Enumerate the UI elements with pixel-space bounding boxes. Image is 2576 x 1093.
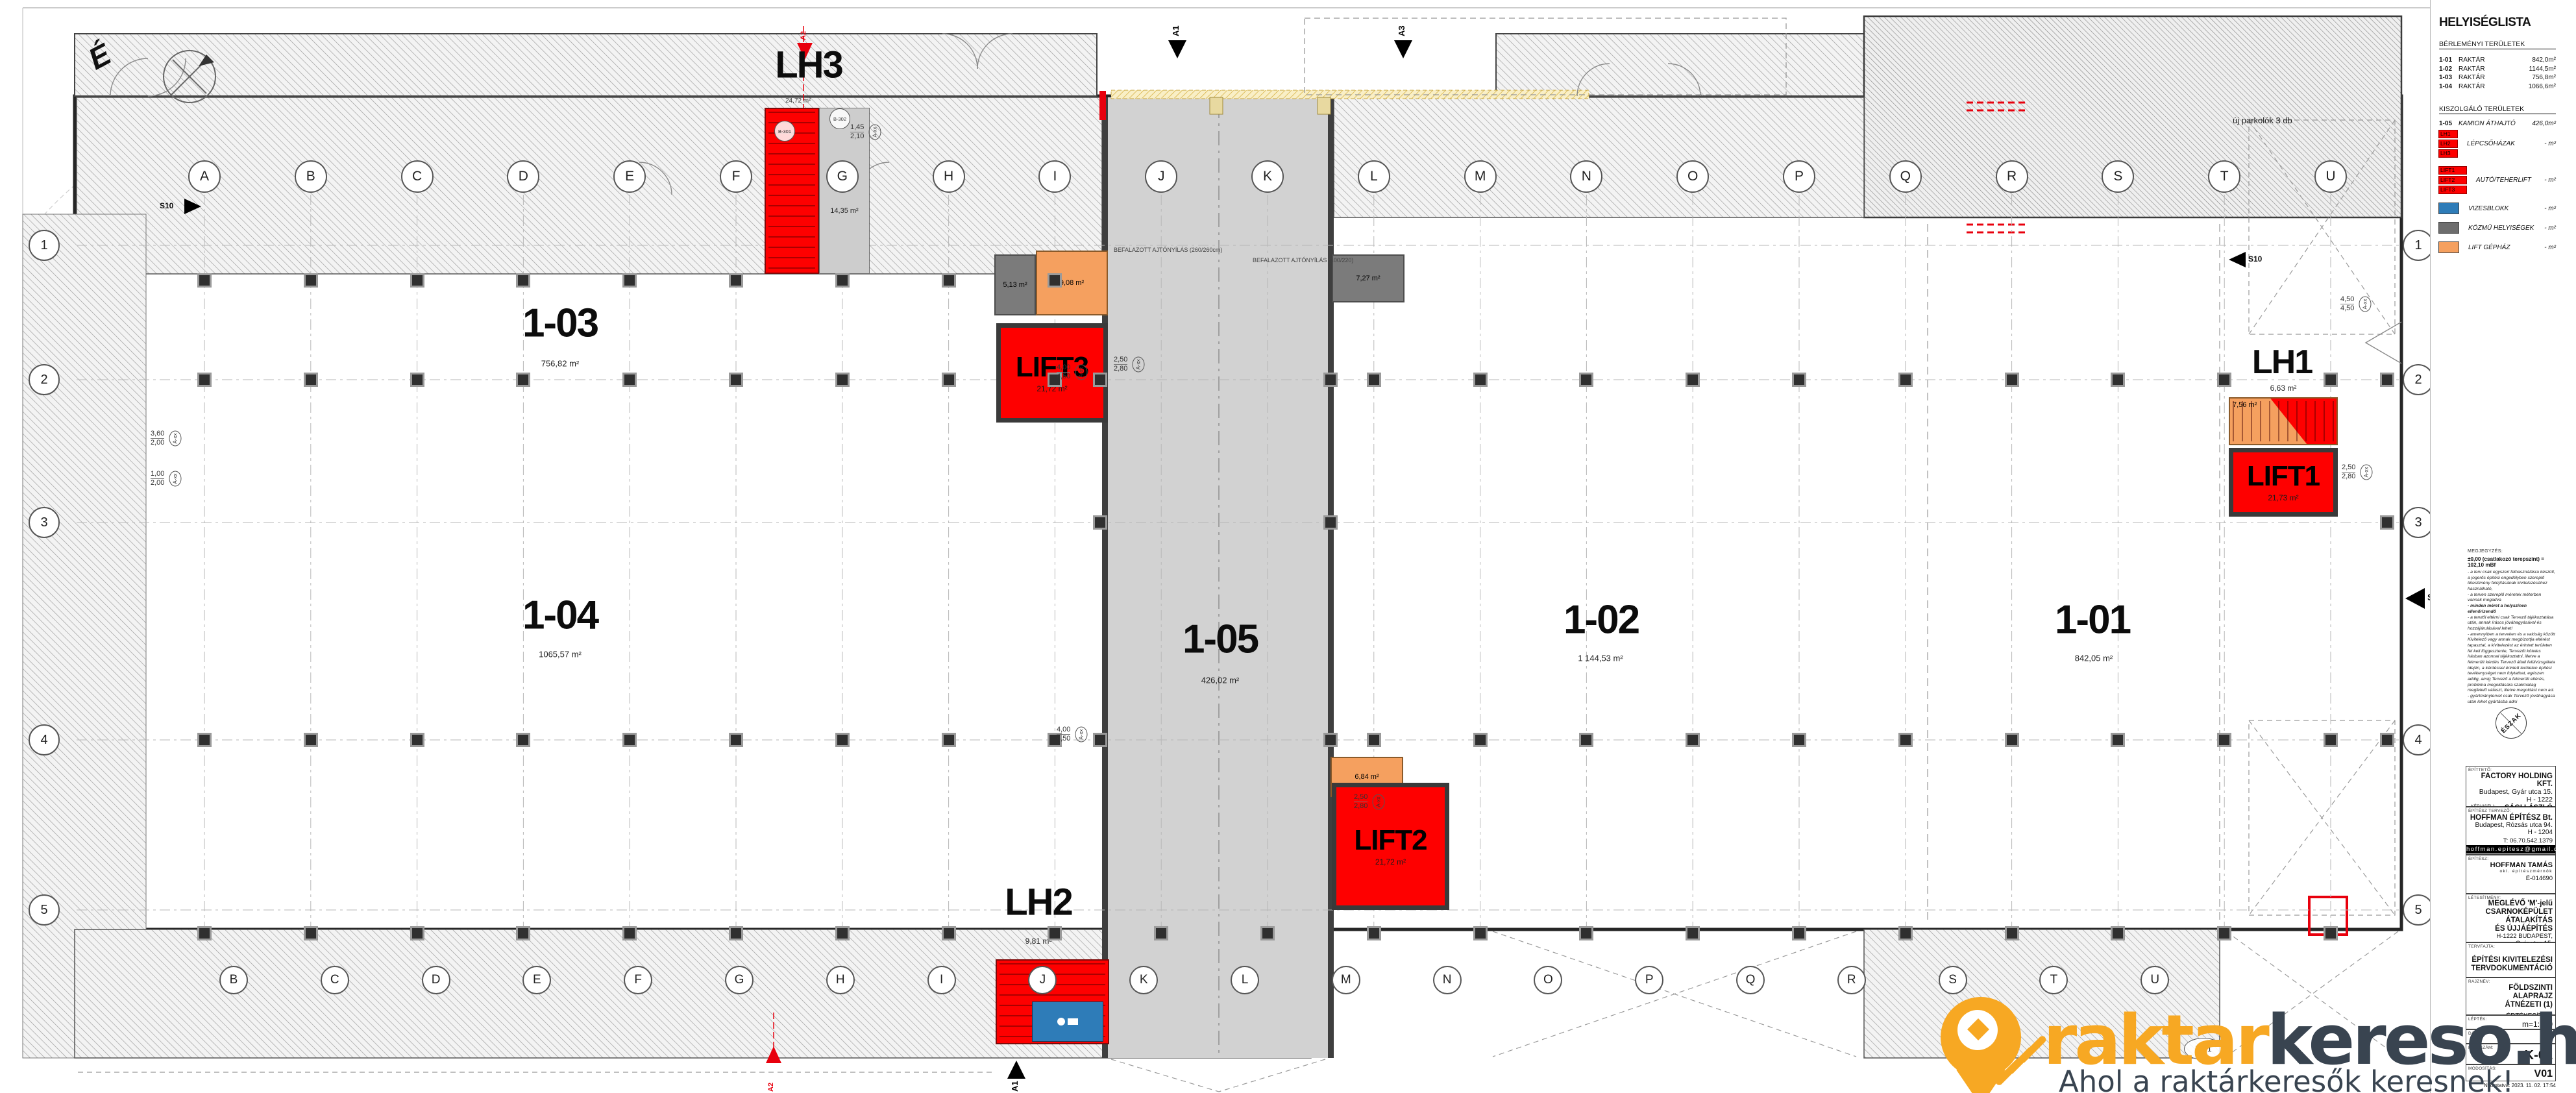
notes-block: MEGJEGYZÉS: ±0,00 (csatlakozó terepszint… <box>2468 549 2556 706</box>
legend-row: 1-04RAKTÁR1066,6m² <box>2439 82 2556 92</box>
compass-icon: ÉSZAK <box>2496 707 2527 739</box>
legend-title: HELYISÉGLISTA <box>2439 16 2531 30</box>
legend-tag-row: LIFT1LIFT2LIFT3AUTÓ/TEHERLIFT- m² <box>2438 166 2556 194</box>
note-line: - gyártmánytervet csak Tervező jóváhagyá… <box>2468 694 2556 705</box>
legend-swatch-row: VIZESBLOKK- m² <box>2438 203 2556 214</box>
legend-service-heading: KISZOLGÁLÓ TERÜLETEK <box>2439 105 2556 114</box>
note-line: - a terv csak egyszeri felhasználásra ké… <box>2468 570 2556 593</box>
architect-box: ÉPÍTÉSZ: HOFFMAN TAMÁS okl. építészmérnö… <box>2466 855 2556 894</box>
note-line: - minden méret a helyszínen ellenőrizend… <box>2468 604 2556 615</box>
legend-rental-heading: BÉRLEMÉNYI TERÜLETEK <box>2439 40 2556 49</box>
facility-box: LÉTESÍTMÉNY: MEGLÉVŐ 'M'-jelű CSARNOKÉPÜ… <box>2466 894 2556 942</box>
note-line: - a tervtől eltérni csak Tervező tájékoz… <box>2468 615 2556 632</box>
designer-email: hoffman.epitesz@gmail.com <box>2466 845 2555 854</box>
printed-timestamp: Nyomtatva: 2023. 11. 02. 17:54 <box>2466 1083 2556 1088</box>
drawing-number-box: RAJZSZÁM: K-01 <box>2466 1044 2556 1064</box>
legend-row: 1-02RAKTÁR1144,5m² <box>2439 65 2556 74</box>
legend-swatch-row: KÖZMŰ HELYISÉGEK- m² <box>2438 222 2556 234</box>
legend-row: 1-01RAKTÁR842,0m² <box>2439 56 2556 65</box>
legend-row: 1-03RAKTÁR756,8m² <box>2439 73 2556 82</box>
note-line: - amennyiben a terveken és a valóság köz… <box>2468 632 2556 694</box>
scale-box: LÉPTÉK: m=1:100 <box>2466 1015 2556 1029</box>
legend-tag-row: LH1LH2LH3LÉPCSŐHÁZAK- m² <box>2438 130 2556 158</box>
plan-type-box: TERVFAJTA: ÉPÍTÉSI KIVITELEZÉSI TERVDOKU… <box>2466 942 2556 977</box>
client-box: ÉPÍTTETŐ: FACTORY HOLDING KFT. Budapest,… <box>2466 766 2556 807</box>
drawing-name-box: RAJZNÉV: FÖLDSZINTI ALAPRAJZ ÁTNÉZETI (1… <box>2466 977 2556 1015</box>
title-block-panel: HELYISÉGLISTA BÉRLEMÉNYI TERÜLETEK 1-01R… <box>2430 0 2576 1093</box>
plan-linework <box>0 0 2576 1093</box>
date-box: DÁTUM: 30 <box>2466 1029 2556 1044</box>
notes-datum-line: ±0,00 (csatlakozó terepszint) = 102,10 m… <box>2468 556 2556 568</box>
legend-row: 1-05KAMION ÁTHAJTÓ426,0m² <box>2439 119 2556 129</box>
floor-plan-sheet: É LH3 24,72 m² 14,35 m² B-301 B-302 5,13… <box>0 0 2576 1093</box>
designer-box: ÉPÍTÉSZ TERVEZŐ: HOFFMAN ÉPÍTÉSZ Bt. Bud… <box>2466 807 2556 855</box>
revision-box: MÓDOSÍTÁS: V01 <box>2466 1064 2556 1081</box>
note-line: - a terven szereplő méretek méterben van… <box>2468 593 2556 604</box>
legend-swatch-row: LIFT GÉPHÁZ- m² <box>2438 241 2556 253</box>
notes-heading: MEGJEGYZÉS: <box>2468 549 2556 554</box>
